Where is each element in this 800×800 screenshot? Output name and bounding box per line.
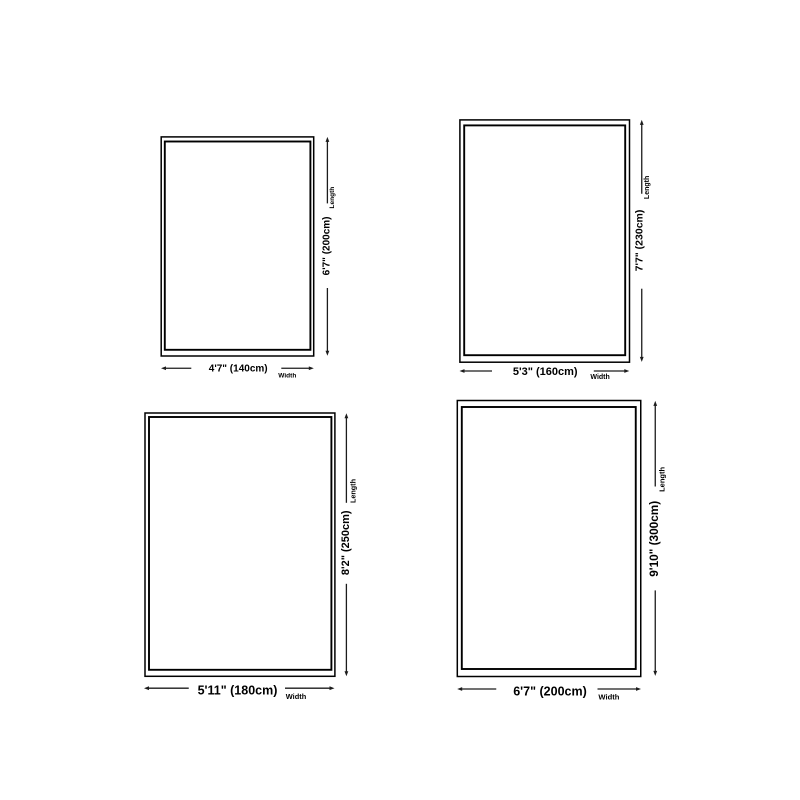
svg-text:Width: Width [286, 692, 307, 701]
svg-text:7'7" (230cm): 7'7" (230cm) [633, 210, 645, 272]
svg-text:Length: Length [329, 187, 336, 209]
svg-text:Length: Length [349, 479, 358, 503]
svg-text:8'2" (250cm): 8'2" (250cm) [340, 510, 352, 575]
svg-text:Width: Width [278, 373, 296, 380]
svg-text:6'7" (200cm): 6'7" (200cm) [321, 216, 332, 275]
svg-text:9'10" (300cm): 9'10" (300cm) [647, 501, 661, 577]
svg-text:6'7" (200cm): 6'7" (200cm) [513, 684, 587, 698]
svg-text:Width: Width [590, 374, 609, 381]
svg-text:4'7" (140cm): 4'7" (140cm) [209, 364, 268, 375]
svg-text:Length: Length [657, 466, 666, 491]
svg-text:Length: Length [644, 176, 651, 199]
svg-text:5'11" (180cm): 5'11" (180cm) [198, 684, 278, 698]
svg-text:Width: Width [598, 693, 619, 702]
svg-text:5'3" (160cm): 5'3" (160cm) [513, 366, 578, 378]
